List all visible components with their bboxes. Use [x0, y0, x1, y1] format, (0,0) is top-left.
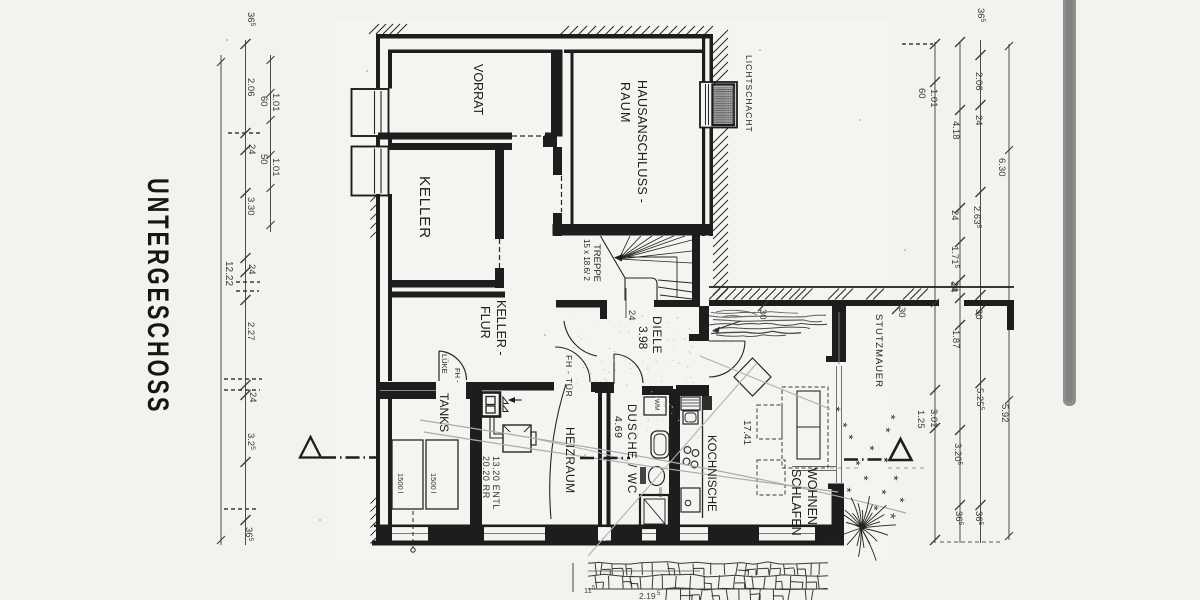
svg-text:24: 24 [973, 115, 984, 126]
svg-text:30: 30 [757, 309, 768, 320]
svg-text:WM: WM [653, 399, 660, 411]
svg-text:KELLER: KELLER [416, 176, 433, 239]
svg-text:FLUR: FLUR [478, 306, 492, 339]
svg-text:TANKS: TANKS [437, 393, 451, 432]
svg-text:SCHLAFEN: SCHLAFEN [789, 469, 803, 536]
svg-text:3.30: 3.30 [245, 197, 256, 216]
svg-text:3.01: 3.01 [928, 409, 939, 428]
svg-text:4.18: 4.18 [950, 121, 961, 140]
svg-text:5: 5 [592, 585, 595, 591]
svg-text:1500 l: 1500 l [429, 473, 438, 494]
svg-text:24: 24 [247, 392, 258, 403]
svg-text:13.20 ENTL: 13.20 ENTL [491, 456, 501, 510]
svg-text:11: 11 [584, 586, 592, 595]
svg-text:1.01: 1.01 [270, 93, 281, 112]
svg-text:1.87: 1.87 [950, 330, 961, 349]
svg-text:5.92: 5.92 [999, 404, 1010, 423]
svg-text:4.69: 4.69 [612, 416, 624, 438]
svg-text:30: 30 [896, 307, 907, 318]
svg-text:24: 24 [949, 210, 960, 221]
svg-text:LICHTSCHACHT: LICHTSCHACHT [744, 55, 754, 133]
svg-text:6.30: 6.30 [996, 158, 1007, 177]
svg-text:2.06: 2.06 [973, 72, 984, 91]
svg-text:2.19: 2.19 [639, 591, 656, 600]
svg-text:30: 30 [973, 309, 984, 320]
svg-text:1500 l: 1500 l [396, 473, 405, 494]
svg-text:15 x 18.6/ 2: 15 x 18.6/ 2 [582, 239, 591, 281]
svg-text:FH - TÜR: FH - TÜR [564, 355, 574, 398]
svg-text:20.20 RR: 20.20 RR [481, 456, 491, 499]
svg-text:DIELE: DIELE [650, 316, 664, 354]
svg-text:WOHNEN: WOHNEN [805, 468, 819, 525]
svg-text:HAUSANSCHLUSS -: HAUSANSCHLUSS - [635, 80, 649, 203]
svg-text:2.27: 2.27 [245, 322, 256, 341]
svg-text:24: 24 [626, 310, 637, 321]
svg-text:TREPPE: TREPPE [591, 244, 602, 282]
svg-text:1.25: 1.25 [915, 410, 926, 429]
svg-text:KOCHNISCHE: KOCHNISCHE [705, 435, 717, 512]
svg-text:17.41: 17.41 [741, 420, 752, 445]
svg-text:VORRAT: VORRAT [471, 64, 485, 116]
svg-text:DUSCHE / WC: DUSCHE / WC [625, 404, 637, 495]
svg-text:LÜKE: LÜKE [440, 354, 449, 374]
svg-text:1.01: 1.01 [928, 89, 939, 108]
svg-text:1.01: 1.01 [270, 158, 281, 177]
svg-text:SWB: SWB [658, 487, 663, 497]
svg-text:60: 60 [916, 88, 927, 99]
svg-text:24: 24 [948, 282, 959, 293]
svg-text:50: 50 [258, 154, 269, 165]
svg-text:RAUM: RAUM [618, 82, 632, 124]
svg-text:3.98: 3.98 [636, 326, 650, 350]
svg-text:FH -: FH - [453, 368, 462, 383]
svg-text:60: 60 [258, 96, 269, 107]
svg-text:2.06: 2.06 [245, 78, 256, 97]
svg-text:UNTERGESCHOSS: UNTERGESCHOSS [141, 178, 173, 414]
svg-text:24: 24 [246, 144, 257, 155]
svg-text:HEIZRAUM: HEIZRAUM [563, 427, 577, 494]
svg-text:24: 24 [246, 264, 257, 275]
svg-text:STUTZMAUER: STUTZMAUER [873, 314, 884, 388]
svg-text:12.22: 12.22 [223, 261, 234, 286]
svg-text:KELLER -: KELLER - [494, 300, 508, 356]
